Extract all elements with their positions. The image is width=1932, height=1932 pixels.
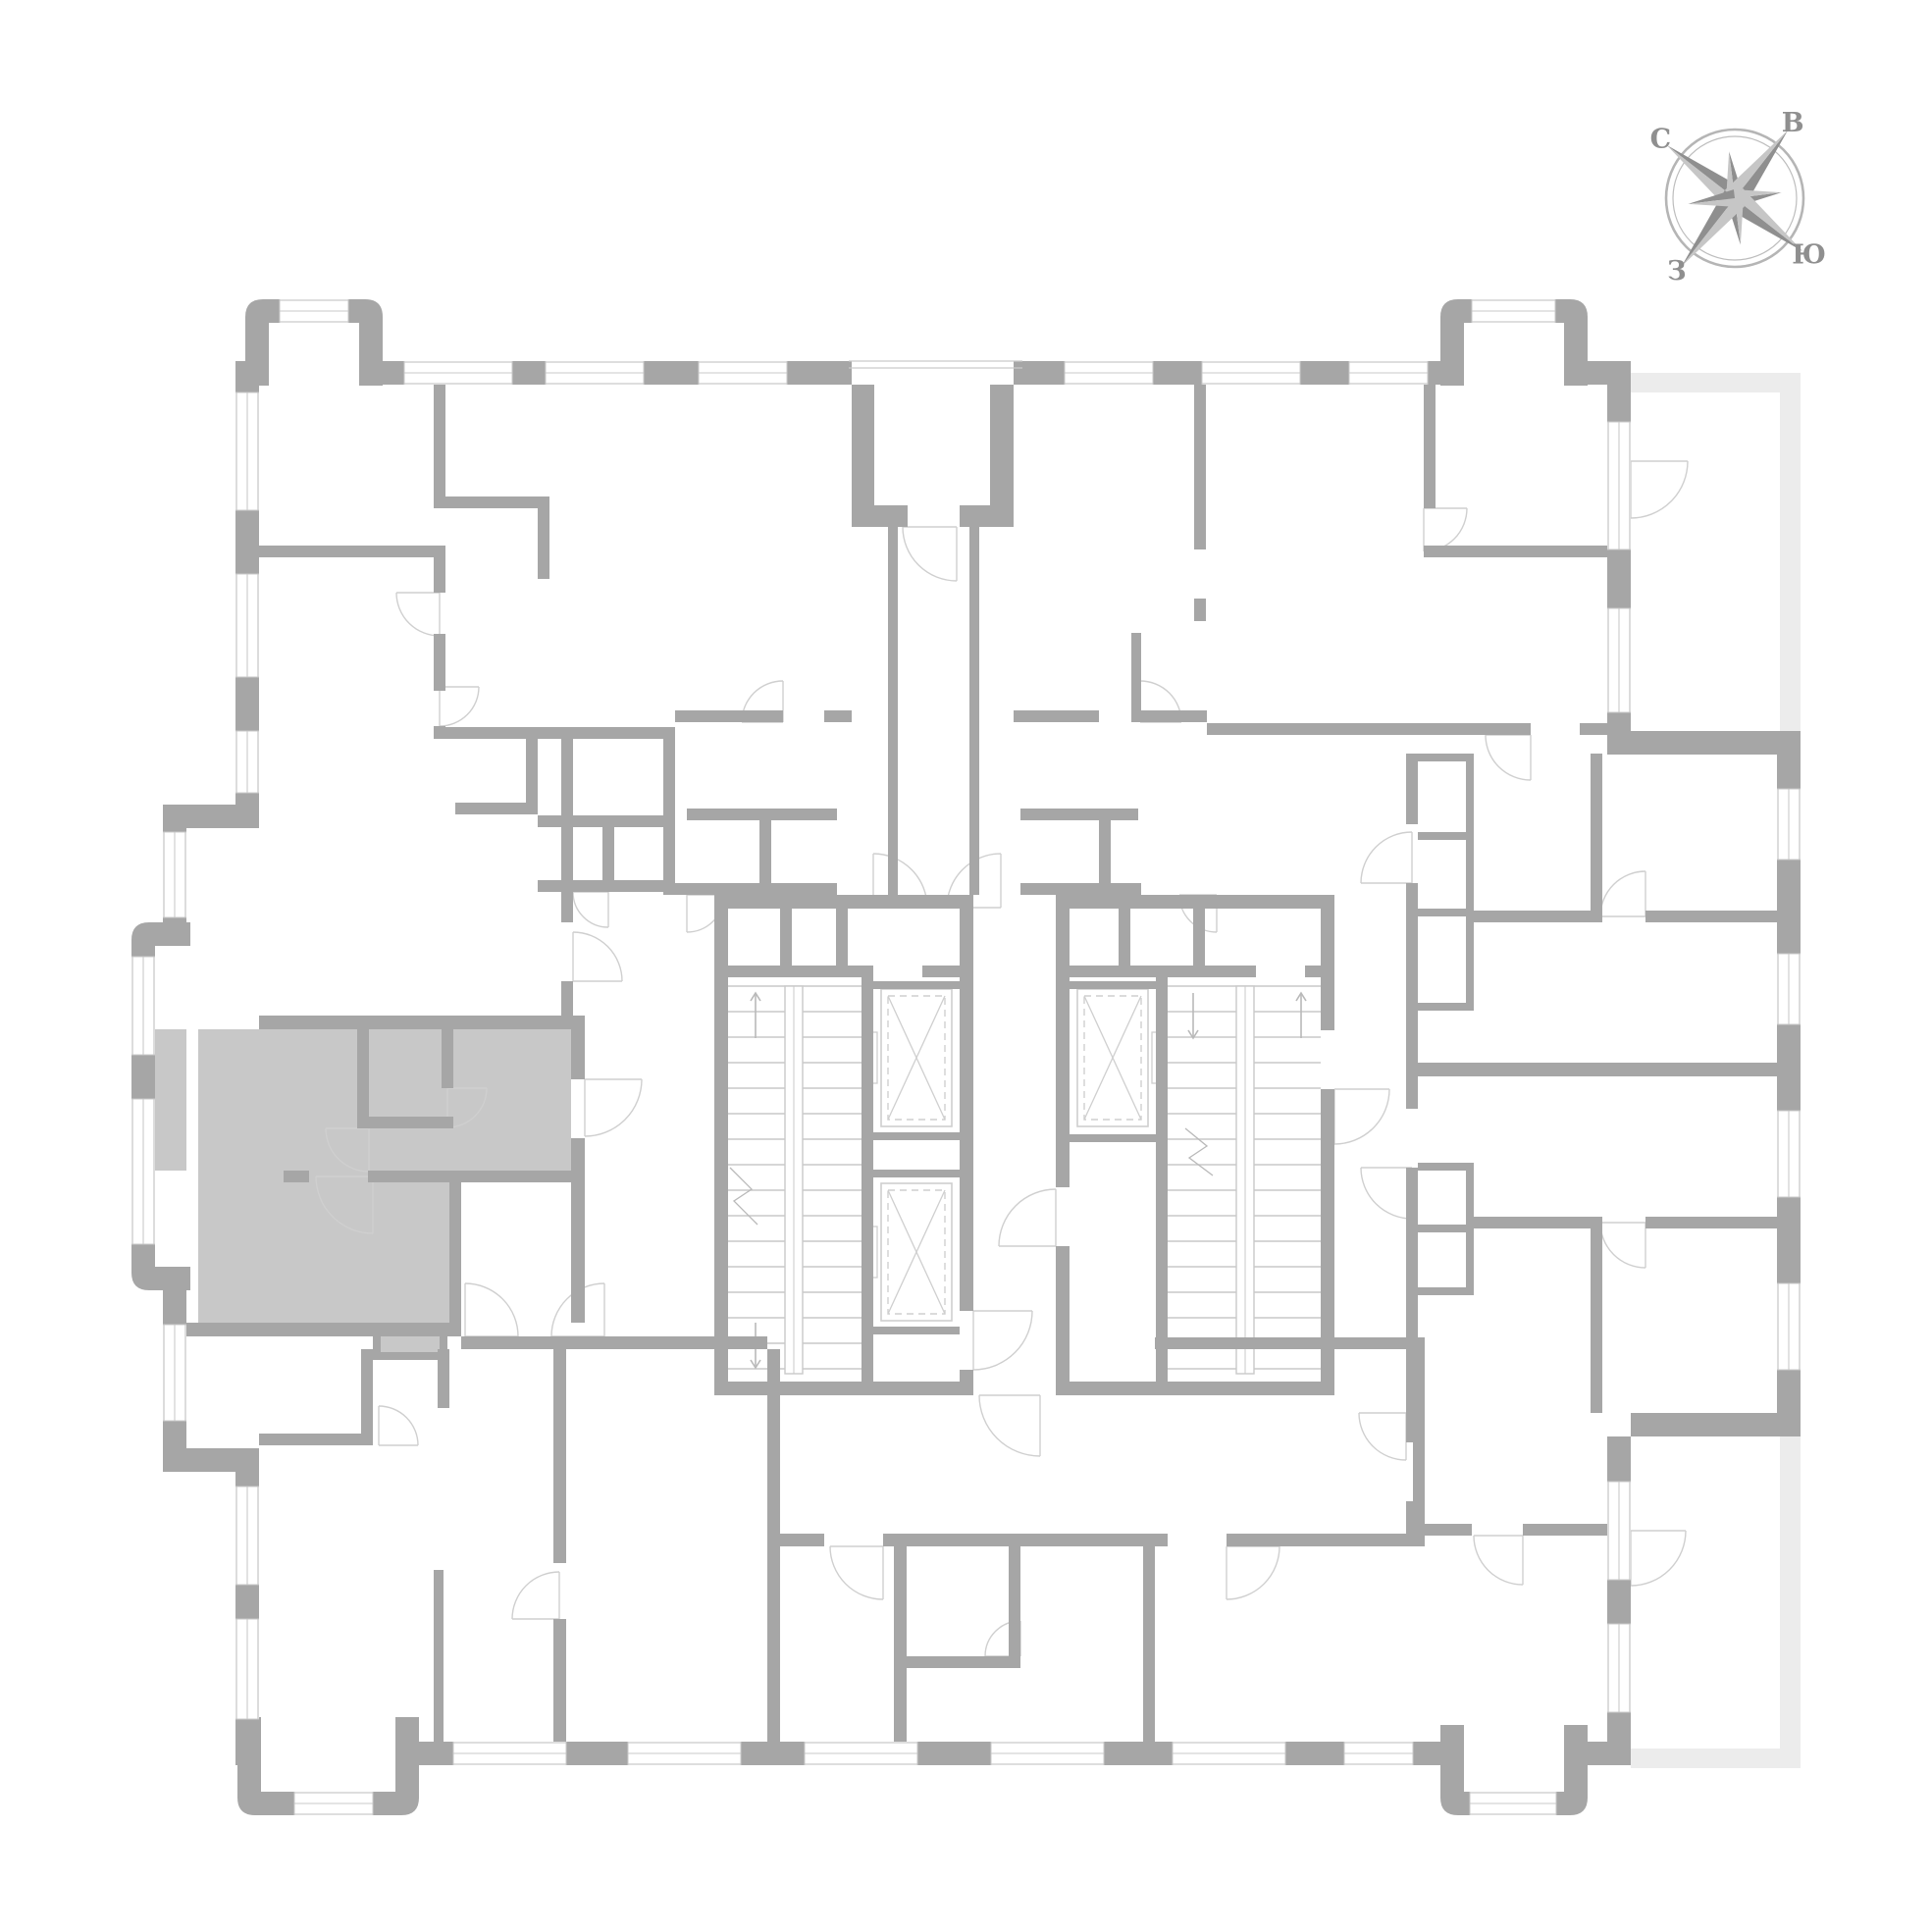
floor-plan-canvas: СВЮЗ	[0, 0, 1932, 1932]
compass-rose: СВЮЗ	[1650, 108, 1826, 287]
stairwells	[728, 986, 1321, 1374]
compass-label-n: С	[1650, 124, 1672, 154]
compass-label-w: З	[1667, 256, 1686, 287]
compass-label-s: Ю	[1792, 240, 1826, 271]
elevator-shafts	[869, 989, 1160, 1321]
compass-label-e: В	[1782, 108, 1804, 138]
floor-plan-page: СВЮЗ	[0, 0, 1932, 1932]
